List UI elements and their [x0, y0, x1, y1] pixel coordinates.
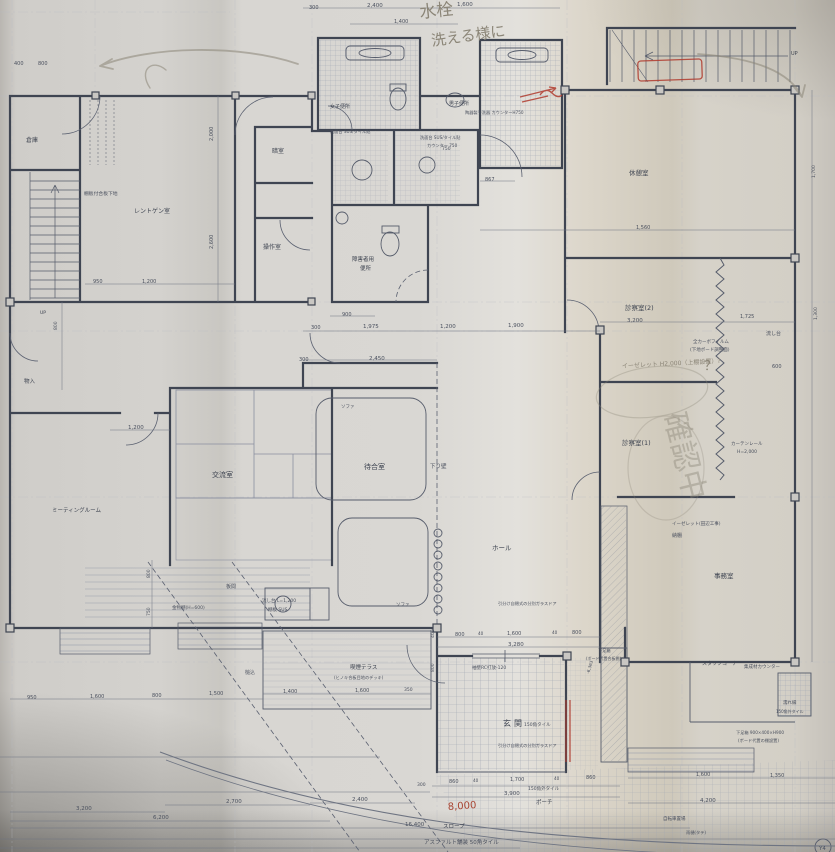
room-label: 喫煙テラス: [350, 663, 377, 671]
dimension: 800: [152, 693, 162, 699]
dimension: 867: [485, 177, 495, 183]
room-label: 障害者用: [352, 255, 374, 263]
dimension: 2,700: [226, 799, 242, 805]
room-label: 倉庫: [26, 136, 38, 144]
floor-plan-photo: 倉庫レントゲン室暗室操作室女子便所男子便所障害者用便所休憩室診察室(2)診察室(…: [0, 0, 835, 852]
dimension: 40: [478, 631, 484, 636]
annotation: 150角外タイル: [776, 708, 804, 714]
annotation: 下り壁: [430, 462, 447, 470]
dimension: 600: [772, 364, 782, 370]
annotation: 全カーボフィルム: [693, 338, 729, 345]
annotation: (ボード代置の棚設置): [738, 737, 779, 744]
annotation: Y4: [818, 846, 826, 852]
room-label: 待合室: [364, 462, 385, 471]
dimension: 400: [430, 629, 436, 638]
smoking-terrace-deck: [263, 631, 431, 709]
room-label: 交流室: [212, 470, 233, 479]
dimension: 350: [404, 687, 413, 693]
annotation: 濡れ縁: [783, 699, 797, 706]
dimension: 950: [93, 279, 103, 285]
accordion-partition: [716, 258, 724, 480]
counter-hatch: [601, 506, 626, 761]
annotation: 洗面台 SUS/タイル貼: [330, 128, 371, 135]
dimension: 1,300: [813, 307, 819, 320]
pencil-curl: [145, 65, 166, 88]
handwritten-note: 水栓: [418, 0, 454, 23]
dimension: 1,600: [355, 688, 369, 694]
dimension: 300: [309, 5, 319, 11]
dimension: 1,900: [508, 323, 524, 329]
annotation: 洗面台 SUS/タイル貼: [420, 134, 461, 141]
deck-strip-3: [628, 748, 754, 772]
room-label: スタッフコーナー: [702, 660, 742, 667]
dimension: 6,200: [153, 815, 169, 821]
dimension: 1,500: [209, 691, 223, 697]
dimension: 750: [146, 607, 152, 616]
room-label: 男子便所: [449, 100, 469, 107]
annotation: ソファ: [396, 602, 410, 608]
vestibule-tile: [568, 658, 598, 770]
dimension: 1,560: [636, 225, 650, 231]
annotation: 袖壁RC打放-120: [472, 664, 506, 671]
room-label: 物入: [24, 377, 36, 385]
dimension: 1,700: [811, 165, 817, 178]
dimension: 2,400: [367, 3, 383, 9]
dimension: 400: [14, 61, 24, 67]
annotation: イーゼレット(田辺工事): [672, 520, 721, 527]
annotation: 槌込: [245, 669, 255, 676]
room-label: 操作室: [263, 243, 281, 251]
handwritten-note: ？: [704, 359, 717, 374]
dimension: 40: [552, 630, 558, 635]
annotation: 150角外タイル: [528, 785, 560, 792]
annotation: アスファルト舗装 50角タイル: [424, 838, 499, 846]
dimension: 40: [473, 778, 479, 783]
room-label: 暗室: [272, 147, 284, 155]
room-label: 休憩室: [629, 168, 649, 177]
annotation: 引分け自閉式の分別ガラスドア: [498, 742, 557, 749]
dimension: 950: [27, 695, 37, 701]
dimension: 4,200: [700, 798, 716, 804]
dimension: 800: [53, 321, 59, 330]
dimension: 2,600: [209, 235, 215, 249]
dimension: 1,600: [507, 631, 521, 637]
annotation: 棚板 SUS: [268, 606, 288, 613]
annotation: 金物棚(H=600): [172, 604, 205, 611]
annotation: 自転車置場: [663, 815, 686, 822]
dimension: 3,900: [504, 791, 520, 797]
dimension: 1,350: [770, 773, 784, 779]
room-label: 女子便所: [330, 103, 350, 110]
dimension: 3,200: [76, 806, 92, 812]
annotation: 納棚: [672, 532, 682, 539]
annotation: (ヒノキ合板目地のデッキ): [334, 674, 384, 681]
sofa-outline-2: [338, 518, 428, 606]
dimension: 800: [38, 61, 48, 67]
toilet-bowl-accessible: [381, 232, 399, 256]
floor-plan-drawing: 倉庫レントゲン室暗室操作室女子便所男子便所障害者用便所休憩室診察室(2)診察室(…: [0, 0, 835, 852]
room-label: 事務室: [714, 571, 734, 580]
room-label: 玄関: [503, 718, 525, 728]
pencil-loop-1: [593, 360, 710, 423]
annotation: 陶器製手洗器 カウンターH750: [465, 109, 524, 116]
dimension: 3,280: [508, 642, 524, 648]
annotation: 引分け自閉式の分別ガラスドア: [498, 600, 557, 607]
dimension: 800: [572, 630, 582, 636]
dimension: 750: [442, 146, 451, 152]
room-label: 診察室(2): [625, 303, 654, 312]
annotation: 下足箱 900×400×H900: [736, 729, 784, 736]
dimension: 1,600: [457, 2, 473, 8]
dashed-lines: [148, 270, 448, 852]
washroom-tile-left: [332, 132, 388, 203]
dimension: 300: [311, 325, 321, 331]
annotation: 板間: [226, 583, 236, 590]
mens-toilet-tile: [480, 42, 560, 166]
womens-toilet-tile: [318, 40, 418, 130]
dimension: 2,400: [352, 797, 368, 803]
annotation: カーテンレール: [731, 441, 763, 447]
room-label: ホール: [492, 544, 512, 552]
dimension: 860: [449, 779, 459, 785]
dimension: 900: [342, 312, 352, 318]
annotation: 雨樋(タテ): [686, 829, 706, 836]
corner-sink: [336, 212, 348, 224]
dimension: 300: [299, 357, 309, 363]
pencil-arrow-left: [100, 50, 298, 69]
dimension: 40: [554, 776, 560, 781]
dimension: 16,400: [405, 822, 425, 828]
dimension: 1,725: [740, 314, 754, 320]
room-label: 診察室(1): [622, 438, 651, 447]
annotation: 150角タイル: [524, 721, 551, 728]
annotation: 棚板付合板下地: [84, 190, 118, 197]
handwritten-note: 8,000: [447, 800, 476, 813]
annotation: 下足箱: [598, 647, 611, 654]
dimension: 800: [455, 632, 465, 638]
dimension: 1,200: [128, 425, 144, 431]
stair-top-right: [610, 30, 790, 82]
dimension: 1,400: [283, 689, 297, 695]
dimension: 1,975: [363, 324, 379, 330]
dimension: 300: [417, 782, 426, 788]
dimension: 800: [430, 663, 436, 672]
dimension: 3,200: [627, 318, 643, 324]
stair-top-left: [30, 100, 114, 300]
room-label: ポーチ: [536, 799, 553, 806]
dimension: 2,450: [369, 356, 385, 362]
dimension: 860: [586, 775, 596, 781]
room-label: ミーティングルーム: [52, 506, 102, 514]
annotation: 流し台 L=1,200: [262, 597, 296, 604]
dimension: 1,700: [510, 777, 524, 783]
dimension: 1,400: [394, 19, 408, 25]
tatami-mats: [176, 390, 332, 560]
entrance-tile: [438, 658, 564, 770]
dimension: 1,600: [90, 694, 104, 700]
room-label: 便所: [360, 264, 372, 272]
dimension: 1,600: [696, 772, 710, 778]
room-label: UP: [791, 51, 798, 57]
annotation: 流し台: [766, 330, 781, 337]
room-label: スロープ: [443, 823, 465, 830]
annotation: (下地ボード調整面): [690, 346, 730, 353]
dimension: 2,000: [209, 127, 215, 141]
annotation: (ボード代置合板棚): [586, 655, 622, 661]
dimension: 1,200: [142, 279, 156, 285]
dimension: 1,200: [440, 324, 456, 330]
annotation: ソファ: [341, 404, 355, 410]
room-label: レントゲン室: [134, 207, 170, 215]
annotation: H=2,000: [737, 449, 757, 455]
dimension: 800: [146, 569, 152, 578]
annotation: 集成材カウンター: [744, 663, 780, 670]
room-label: UP: [40, 310, 46, 316]
deck-strip-1: [60, 628, 150, 654]
